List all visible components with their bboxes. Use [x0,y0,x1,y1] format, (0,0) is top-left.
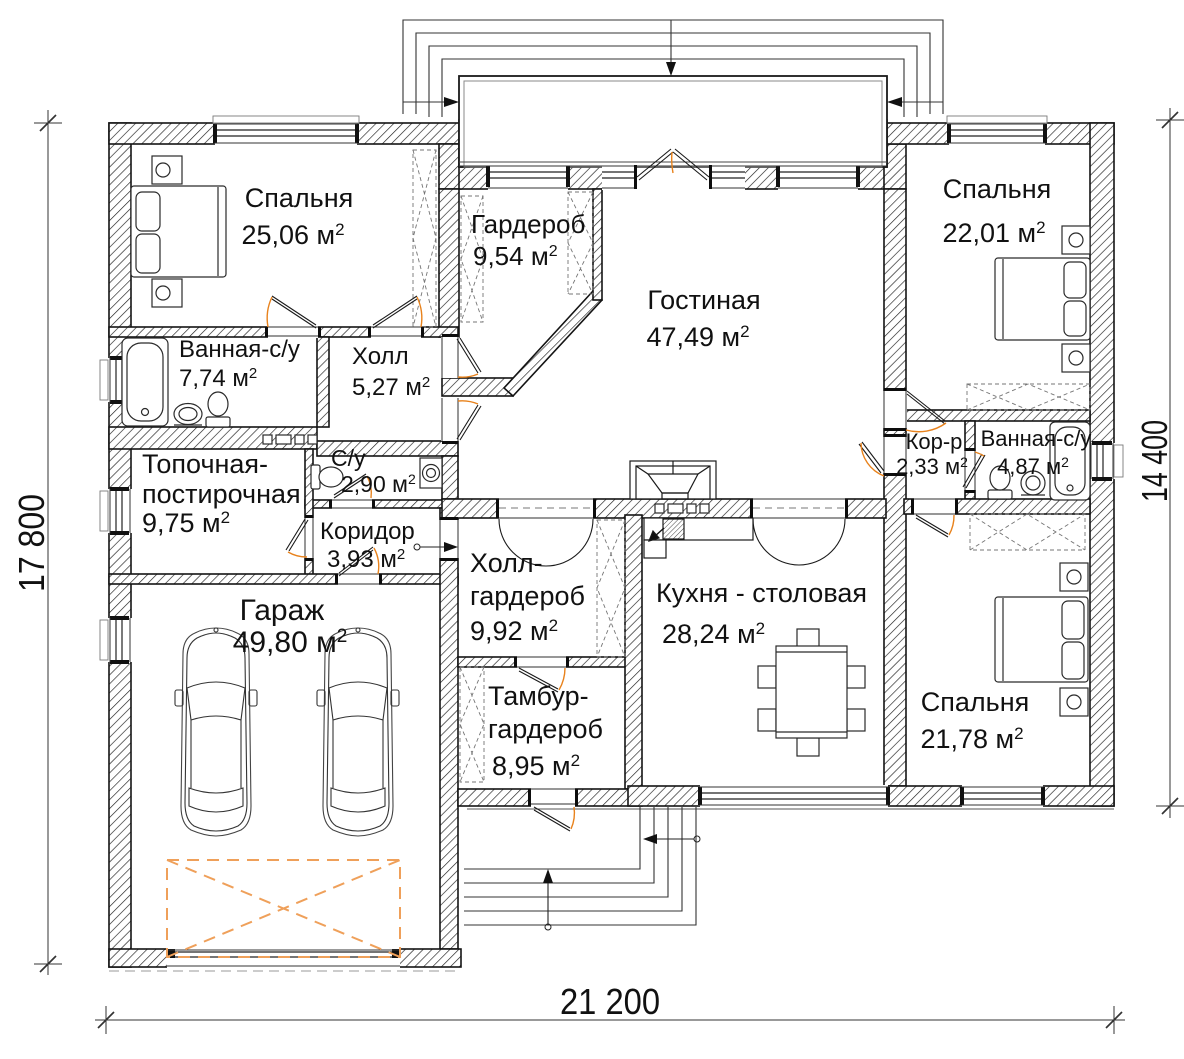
svg-text:Коридор: Коридор [320,518,415,545]
svg-text:гардероб: гардероб [470,581,585,611]
svg-text:С/у: С/у [331,445,366,471]
svg-text:Спальня: Спальня [943,174,1052,204]
svg-text:7,74 м2: 7,74 м2 [179,365,257,392]
svg-text:2,33 м2: 2,33 м2 [896,454,968,479]
svg-text:9,75 м2: 9,75 м2 [142,508,230,538]
svg-text:47,49 м2: 47,49 м2 [646,322,749,352]
svg-text:3,93 м2: 3,93 м2 [327,546,405,573]
svg-text:Топочная-: Топочная- [142,449,268,479]
svg-text:постирочная: постирочная [142,479,301,509]
svg-text:49,80 м2: 49,80 м2 [233,626,348,659]
svg-text:14 400: 14 400 [1134,420,1175,502]
svg-text:21,78 м2: 21,78 м2 [920,724,1023,754]
svg-text:5,27 м2: 5,27 м2 [352,374,430,401]
svg-text:Спальня: Спальня [245,183,354,213]
svg-text:17 800: 17 800 [11,494,52,592]
svg-text:Ванная-с/у: Ванная-с/у [179,336,300,363]
svg-text:2,90 м2: 2,90 м2 [341,471,416,497]
svg-text:28,24 м2: 28,24 м2 [662,619,765,649]
svg-text:22,01 м2: 22,01 м2 [942,218,1045,248]
svg-text:4,87 м2: 4,87 м2 [997,454,1069,479]
svg-text:Спальня: Спальня [921,687,1030,717]
svg-text:9,92 м2: 9,92 м2 [470,616,558,646]
svg-text:Холл: Холл [352,343,409,370]
svg-text:25,06 м2: 25,06 м2 [241,220,344,250]
svg-text:21 200: 21 200 [560,981,660,1022]
svg-text:9,54 м2: 9,54 м2 [473,241,558,271]
svg-text:Гараж: Гараж [240,594,325,627]
svg-text:Ванная-с/у: Ванная-с/у [981,426,1092,451]
svg-text:Гостиная: Гостиная [647,285,760,315]
svg-text:Кор-р: Кор-р [906,429,963,454]
svg-text:Кухня - столовая: Кухня - столовая [656,578,867,608]
svg-text:8,95 м2: 8,95 м2 [492,751,580,781]
svg-text:Тамбур-: Тамбур- [488,681,589,711]
svg-text:гардероб: гардероб [488,714,603,744]
svg-text:Холл-: Холл- [470,548,543,578]
svg-text:Гардероб: Гардероб [471,209,585,239]
